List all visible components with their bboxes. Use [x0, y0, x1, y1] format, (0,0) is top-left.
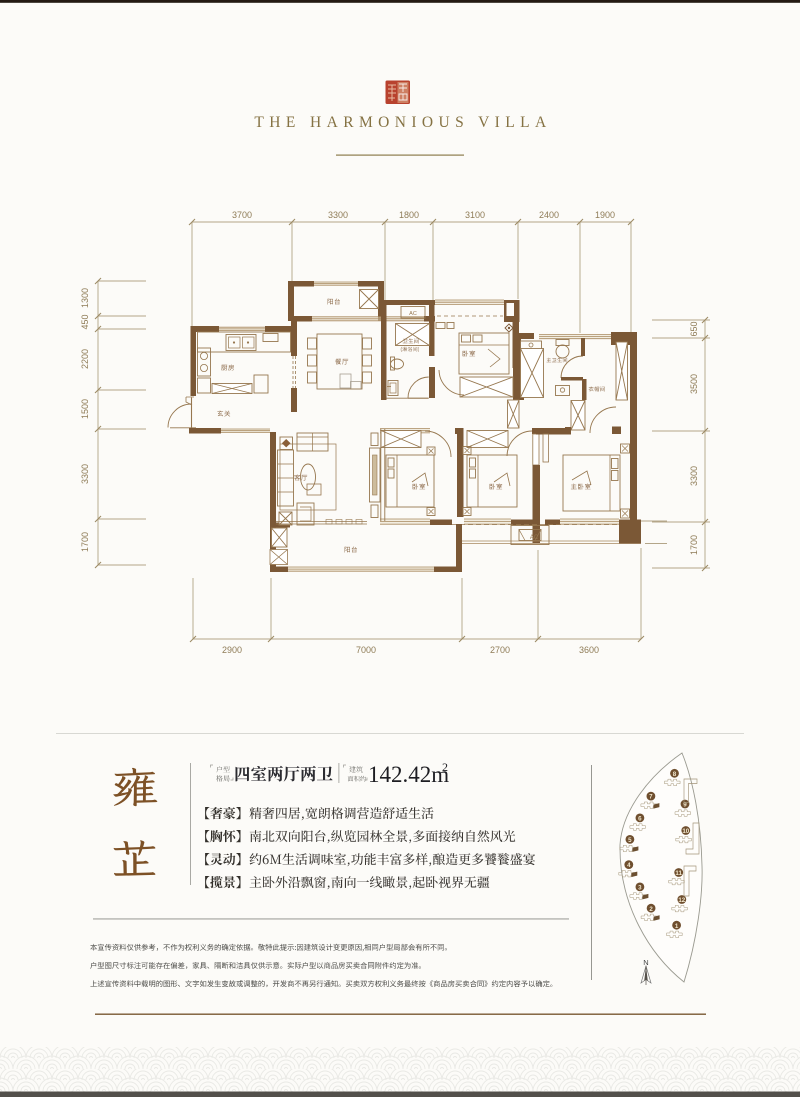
- svg-text:2200: 2200: [80, 349, 90, 369]
- svg-text:2400: 2400: [539, 210, 559, 220]
- svg-text:10: 10: [682, 828, 689, 835]
- svg-text:142.42m: 142.42m: [368, 762, 449, 787]
- svg-text:1800: 1800: [399, 210, 419, 220]
- svg-text:2700: 2700: [490, 645, 510, 655]
- svg-text:5: 5: [628, 837, 632, 844]
- svg-text:650: 650: [689, 321, 699, 336]
- svg-text:1500: 1500: [80, 399, 90, 419]
- svg-text:3700: 3700: [232, 210, 252, 220]
- svg-text:2: 2: [442, 760, 448, 774]
- svg-text:2: 2: [649, 906, 653, 913]
- svg-text:7: 7: [649, 794, 653, 801]
- svg-text:6: 6: [638, 816, 642, 823]
- svg-text:2900: 2900: [222, 645, 242, 655]
- svg-text:3600: 3600: [579, 645, 599, 655]
- svg-text:3: 3: [638, 885, 642, 892]
- svg-text:12: 12: [678, 897, 685, 904]
- svg-text:3100: 3100: [465, 210, 485, 220]
- svg-text:1300: 1300: [80, 288, 90, 308]
- svg-text:11: 11: [675, 870, 682, 877]
- svg-text:THE HARMONIOUS VILLA: THE HARMONIOUS VILLA: [254, 114, 551, 131]
- svg-text:7000: 7000: [356, 645, 376, 655]
- svg-text:3500: 3500: [689, 374, 699, 394]
- svg-text:1900: 1900: [595, 210, 615, 220]
- svg-text:AC: AC: [530, 535, 539, 541]
- svg-text:450: 450: [80, 314, 90, 329]
- svg-text:3300: 3300: [80, 464, 90, 484]
- svg-text:AC: AC: [409, 311, 417, 317]
- svg-text:1700: 1700: [689, 535, 699, 555]
- svg-text:1: 1: [675, 923, 679, 930]
- svg-text:3300: 3300: [328, 210, 348, 220]
- svg-text:3300: 3300: [689, 466, 699, 486]
- svg-text:4: 4: [627, 862, 631, 869]
- svg-text:1700: 1700: [80, 532, 90, 552]
- svg-text:8: 8: [673, 771, 677, 778]
